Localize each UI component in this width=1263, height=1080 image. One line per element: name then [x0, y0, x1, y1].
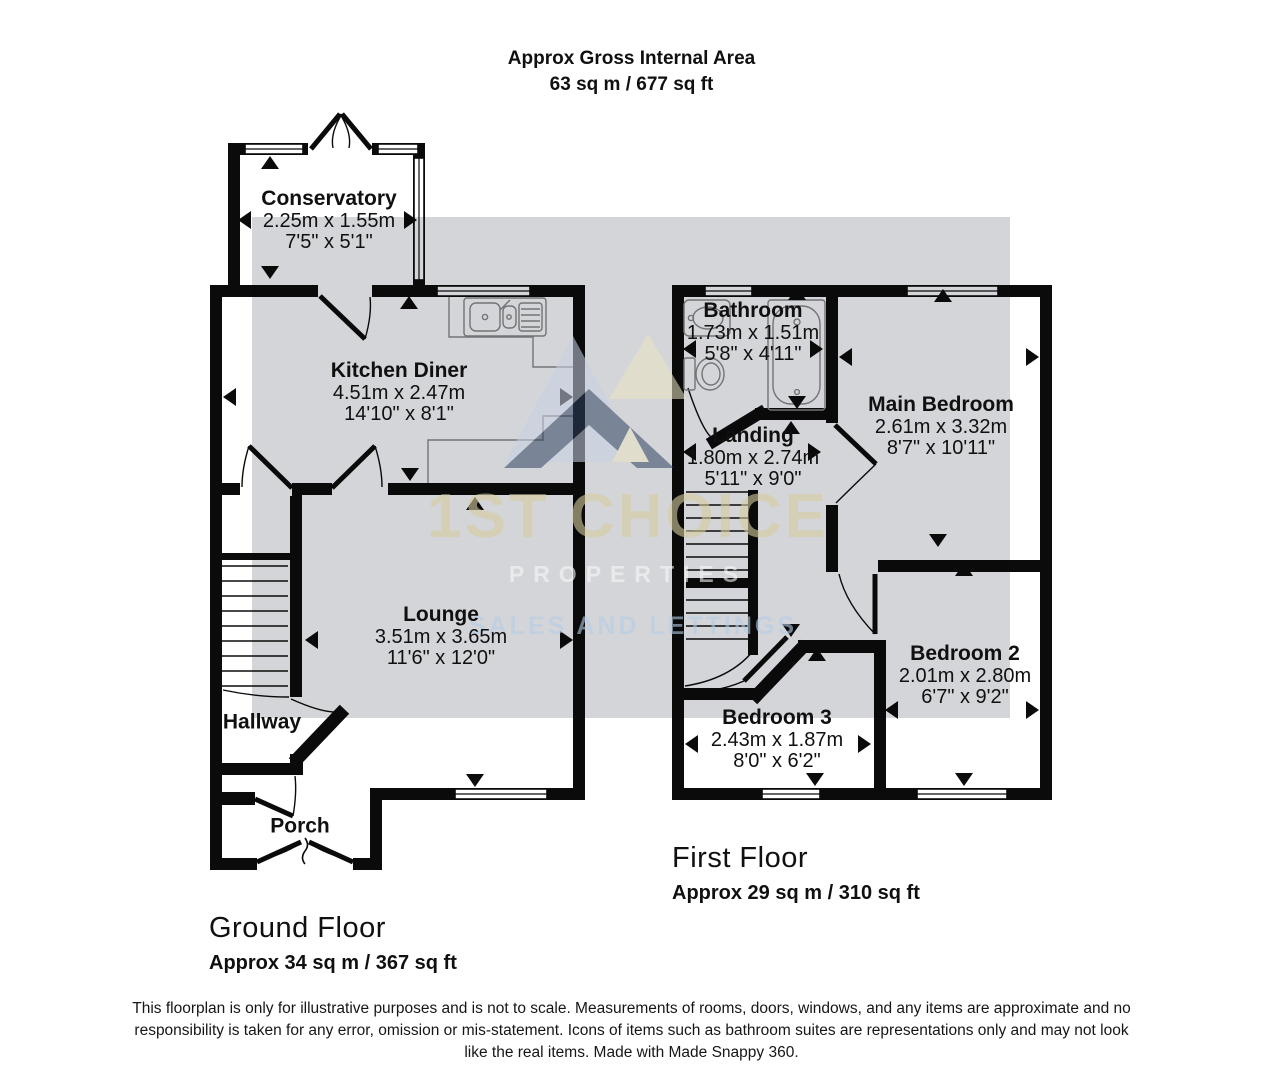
room-dim-metric: 3.51m x 3.65m	[375, 627, 507, 648]
conservatory-window-left	[245, 144, 303, 154]
floor-area: Approx 29 sq m / 310 sq ft	[672, 882, 920, 905]
room-name: Kitchen Diner	[331, 360, 468, 381]
room-dim-metric: 4.51m x 2.47m	[331, 383, 468, 404]
room-name: Bedroom 3	[711, 707, 843, 728]
room-label-main-bedroom: Main Bedroom 2.61m x 3.32m 8'7" x 10'11"	[868, 394, 1014, 460]
room-dim-imperial: 8'0" x 6'2"	[711, 752, 843, 773]
conservatory-window-right	[378, 144, 418, 154]
room-label-bedroom-3: Bedroom 3 2.43m x 1.87m 8'0" x 6'2"	[711, 707, 843, 773]
room-dim-imperial: 7'5" x 5'1"	[261, 233, 396, 254]
room-dim-metric: 1.73m x 1.51m	[687, 323, 819, 344]
page-title: Approx Gross Internal Area 63 sq m / 677…	[0, 46, 1263, 98]
room-name: Bathroom	[687, 300, 819, 321]
room-dim-imperial: 6'7" x 9'2"	[899, 688, 1031, 709]
room-label-hallway: Hallway	[223, 712, 301, 735]
room-label-lounge: Lounge 3.51m x 3.65m 11'6" x 12'0"	[375, 604, 507, 670]
floorplan-page: 1ST CHOICE PROPERTIES SALES AND LETTINGS…	[0, 0, 1263, 1080]
room-dim-imperial: 8'7" x 10'11"	[868, 439, 1014, 460]
watermark-brand: 1ST CHOICE	[427, 482, 829, 551]
floor-area: Approx 34 sq m / 367 sq ft	[209, 952, 457, 975]
room-name: Landing	[687, 425, 819, 446]
room-name: Hallway	[223, 712, 301, 733]
watermark-tagline: PROPERTIES	[509, 561, 747, 587]
room-label-bedroom-2: Bedroom 2 2.01m x 2.80m 6'7" x 9'2"	[899, 643, 1031, 709]
gross-area-value: 63 sq m / 677 sq ft	[0, 72, 1263, 98]
gross-area-heading: Approx Gross Internal Area	[0, 46, 1263, 72]
room-dim-metric: 2.25m x 1.55m	[261, 211, 396, 232]
room-dim-imperial: 11'6" x 12'0"	[375, 649, 507, 670]
ground-floor-label: Ground Floor Approx 34 sq m / 367 sq ft	[209, 912, 457, 975]
floor-name: Ground Floor	[209, 912, 457, 945]
bedroom2-window	[917, 789, 1007, 799]
room-dim-imperial: 5'11" x 9'0"	[687, 470, 819, 491]
room-name: Lounge	[375, 604, 507, 625]
room-label-porch: Porch	[270, 816, 330, 839]
disclaimer-text: This floorplan is only for illustrative …	[124, 998, 1139, 1064]
watermark: 1ST CHOICE PROPERTIES SALES AND LETTINGS	[252, 217, 1010, 718]
room-dim-metric: 2.61m x 3.32m	[868, 417, 1014, 438]
room-dim-metric: 2.43m x 1.87m	[711, 730, 843, 751]
room-name: Porch	[270, 816, 330, 837]
room-label-kitchen-diner: Kitchen Diner 4.51m x 2.47m 14'10" x 8'1…	[331, 360, 468, 426]
first-floor-label: First Floor Approx 29 sq m / 310 sq ft	[672, 842, 920, 905]
room-name: Main Bedroom	[868, 394, 1014, 415]
lounge-window	[455, 789, 547, 799]
watermark-subline: SALES AND LETTINGS	[469, 612, 797, 640]
floorplan-drawing: 1ST CHOICE PROPERTIES SALES AND LETTINGS	[0, 0, 1263, 1080]
room-dim-imperial: 14'10" x 8'1"	[331, 405, 468, 426]
watermark-overlay	[252, 217, 1010, 718]
room-label-bathroom: Bathroom 1.73m x 1.51m 5'8" x 4'11"	[687, 300, 819, 366]
bedroom3-window	[762, 789, 820, 799]
room-dim-imperial: 5'8" x 4'11"	[687, 345, 819, 366]
room-dim-metric: 1.80m x 2.74m	[687, 448, 819, 469]
room-dim-metric: 2.01m x 2.80m	[899, 666, 1031, 687]
room-name: Conservatory	[261, 188, 396, 209]
floor-name: First Floor	[672, 842, 920, 875]
room-label-conservatory: Conservatory 2.25m x 1.55m 7'5" x 5'1"	[261, 188, 396, 254]
room-label-landing: Landing 1.80m x 2.74m 5'11" x 9'0"	[687, 425, 819, 491]
room-name: Bedroom 2	[899, 643, 1031, 664]
